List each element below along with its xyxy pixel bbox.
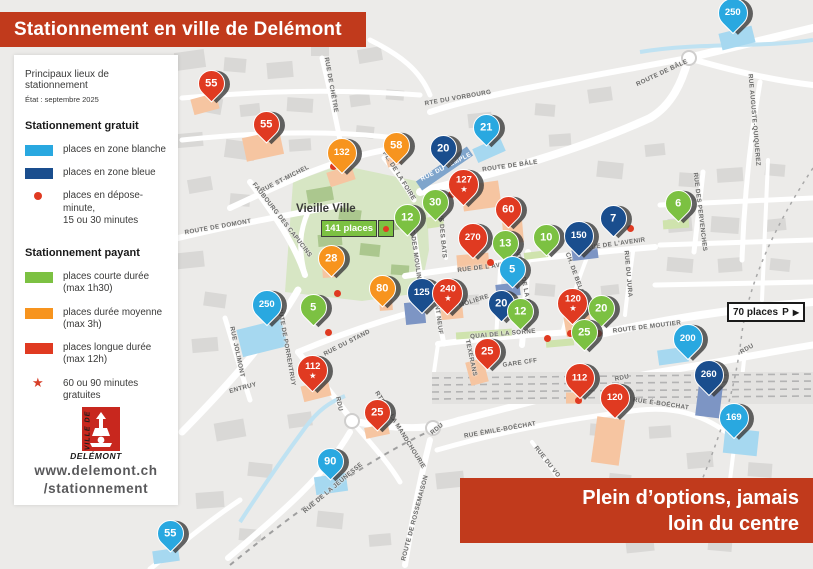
- old-town-label: Vieille Ville: [296, 203, 356, 215]
- legend-item-free-2: places en dépose-minute,15 ou 30 minutes: [25, 190, 168, 227]
- page-title: Stationnement en ville de Delémont: [14, 19, 342, 41]
- depose-minute-dot: [487, 259, 494, 266]
- sign-70-places: 70 places P ▶: [727, 302, 805, 322]
- star-icon: ★: [460, 186, 466, 193]
- depose-minute-dot: [334, 290, 341, 297]
- pin-count: 120: [607, 393, 623, 403]
- star-icon: ★: [309, 372, 315, 379]
- legend-item-paid-0: places courte durée(max 1h30): [25, 271, 168, 295]
- depose-minute-dot: [34, 192, 42, 200]
- old-town-places-badge: 141 places: [321, 220, 377, 237]
- website-line1: www.delemont.ch: [14, 462, 178, 480]
- arrow-right-icon: ▶: [793, 308, 799, 317]
- pin-count: 55: [260, 119, 272, 130]
- city-logo: VILLE DE DELÉMONT: [14, 405, 178, 468]
- pin-count: 20: [495, 298, 507, 309]
- website-url: www.delemont.ch /stationnement: [14, 462, 178, 497]
- pin-count: 125: [414, 288, 430, 298]
- legend-item-free-0: places en zone blanche: [25, 144, 168, 156]
- legend-free-title: Stationnement gratuit: [25, 120, 168, 132]
- old-town-depose-minute-badge: [378, 220, 394, 237]
- slogan-line1: Plein d’options, jamais: [582, 485, 799, 511]
- pin-count: 169: [726, 413, 742, 423]
- legend-swatch: [25, 308, 53, 319]
- logo-vertical-text: VILLE DE: [84, 411, 91, 451]
- legend-paid-title: Stationnement payant: [25, 247, 168, 259]
- pin-count: 25: [481, 346, 493, 357]
- pin-count: 132: [334, 148, 350, 158]
- star-icon: ★: [32, 378, 44, 388]
- pin-count: 55: [205, 78, 217, 89]
- pin-count: 250: [259, 300, 275, 310]
- pin-count: 60: [502, 204, 514, 215]
- legend-swatch: [25, 272, 53, 283]
- slogan-line2: loin du centre: [668, 511, 799, 537]
- pin-count: 200: [680, 334, 696, 344]
- legend-free-section: Stationnement gratuit places en zone bla…: [25, 120, 168, 227]
- pin-count: 10: [540, 232, 552, 243]
- legend-item-label: places en zone bleue: [63, 167, 156, 179]
- pin-count: 112: [304, 361, 319, 371]
- legend-item-paid-1: places durée moyenne(max 3h): [25, 307, 168, 331]
- pin-count: 127: [455, 175, 471, 185]
- poster-root: Stationnement en ville de Delémont Princ…: [0, 0, 813, 569]
- legend-item-label: places en zone blanche: [63, 144, 166, 156]
- pin-count: 270: [465, 233, 481, 243]
- parking-symbol: P: [782, 307, 789, 318]
- depose-minute-dot: [325, 329, 332, 336]
- legend-swatch: [25, 343, 53, 354]
- legend-paid-section: Stationnement payant places courte durée…: [25, 247, 168, 402]
- legend-item-label: places courte durée(max 1h30): [63, 271, 149, 295]
- depose-minute-dot: [383, 226, 389, 232]
- title-banner: Stationnement en ville de Delémont: [0, 12, 366, 47]
- star-icon: ★: [444, 295, 450, 302]
- pin-count: 25: [371, 407, 383, 418]
- legend-item-label: places longue durée(max 12h): [63, 342, 151, 366]
- pin-count: 28: [325, 253, 337, 264]
- status-note: État : septembre 2025: [25, 95, 168, 104]
- pin-count: 21: [480, 122, 492, 133]
- legend-subtitle: Principaux lieux de stationnement: [25, 69, 168, 91]
- pin-count: 55: [164, 528, 176, 539]
- pin-count: 58: [390, 140, 402, 151]
- slogan-banner: Plein d’options, jamais loin du centre: [460, 478, 813, 543]
- pin-count: 90: [324, 456, 336, 467]
- pin-count: 150: [571, 231, 587, 241]
- pin-count: 240: [439, 284, 455, 294]
- website-line2: /stationnement: [14, 480, 178, 498]
- depose-minute-dot: [627, 225, 634, 232]
- depose-minute-dot: [544, 335, 551, 342]
- pin-count: 13: [499, 238, 511, 249]
- pin-count: 25: [578, 327, 590, 338]
- pin-count: 5: [509, 264, 515, 275]
- pin-count: 112: [572, 373, 587, 383]
- pin-count: 20: [437, 143, 449, 154]
- pin-count: 20: [595, 303, 607, 314]
- legend-item-label: 60 ou 90 minutesgratuites: [63, 378, 138, 402]
- legend-swatch: [25, 168, 53, 179]
- pin-count: 120: [564, 294, 580, 304]
- pin-count: 5: [310, 302, 316, 313]
- pin-count: 7: [610, 213, 616, 224]
- pin-count: 30: [429, 197, 441, 208]
- pin-count: 80: [376, 283, 388, 294]
- pin-count: 12: [401, 212, 413, 223]
- logo-city-name: DELÉMONT: [66, 451, 126, 461]
- legend-item-paid-3: ★60 ou 90 minutesgratuites: [25, 378, 168, 402]
- pin-count: 6: [675, 198, 681, 209]
- legend-item-paid-2: places longue durée(max 12h): [25, 342, 168, 366]
- star-icon: ★: [569, 305, 575, 312]
- legend-item-free-1: places en zone bleue: [25, 167, 168, 179]
- pin-count: 250: [725, 8, 741, 17]
- legend-item-label: places en dépose-minute,15 ou 30 minutes: [63, 190, 168, 227]
- pin-count: 12: [514, 306, 526, 317]
- legend-item-label: places durée moyenne(max 3h): [63, 307, 162, 331]
- sign-70-text: 70 places: [733, 307, 782, 318]
- legend-swatch: [25, 145, 53, 156]
- pin-count: 260: [701, 370, 717, 380]
